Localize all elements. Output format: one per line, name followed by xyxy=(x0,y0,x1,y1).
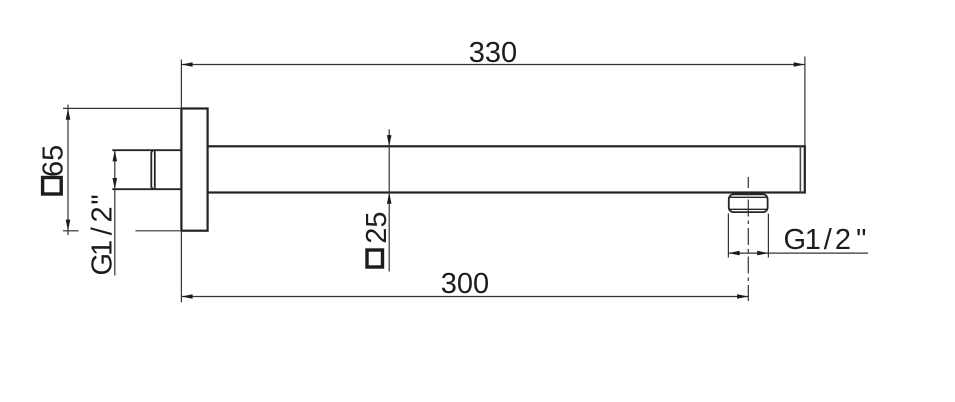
svg-text:330: 330 xyxy=(469,37,517,69)
svg-text:G1/2": G1/2" xyxy=(86,194,118,275)
svg-text:65: 65 xyxy=(38,145,70,177)
svg-text:300: 300 xyxy=(441,268,489,300)
svg-text:25: 25 xyxy=(361,212,393,244)
